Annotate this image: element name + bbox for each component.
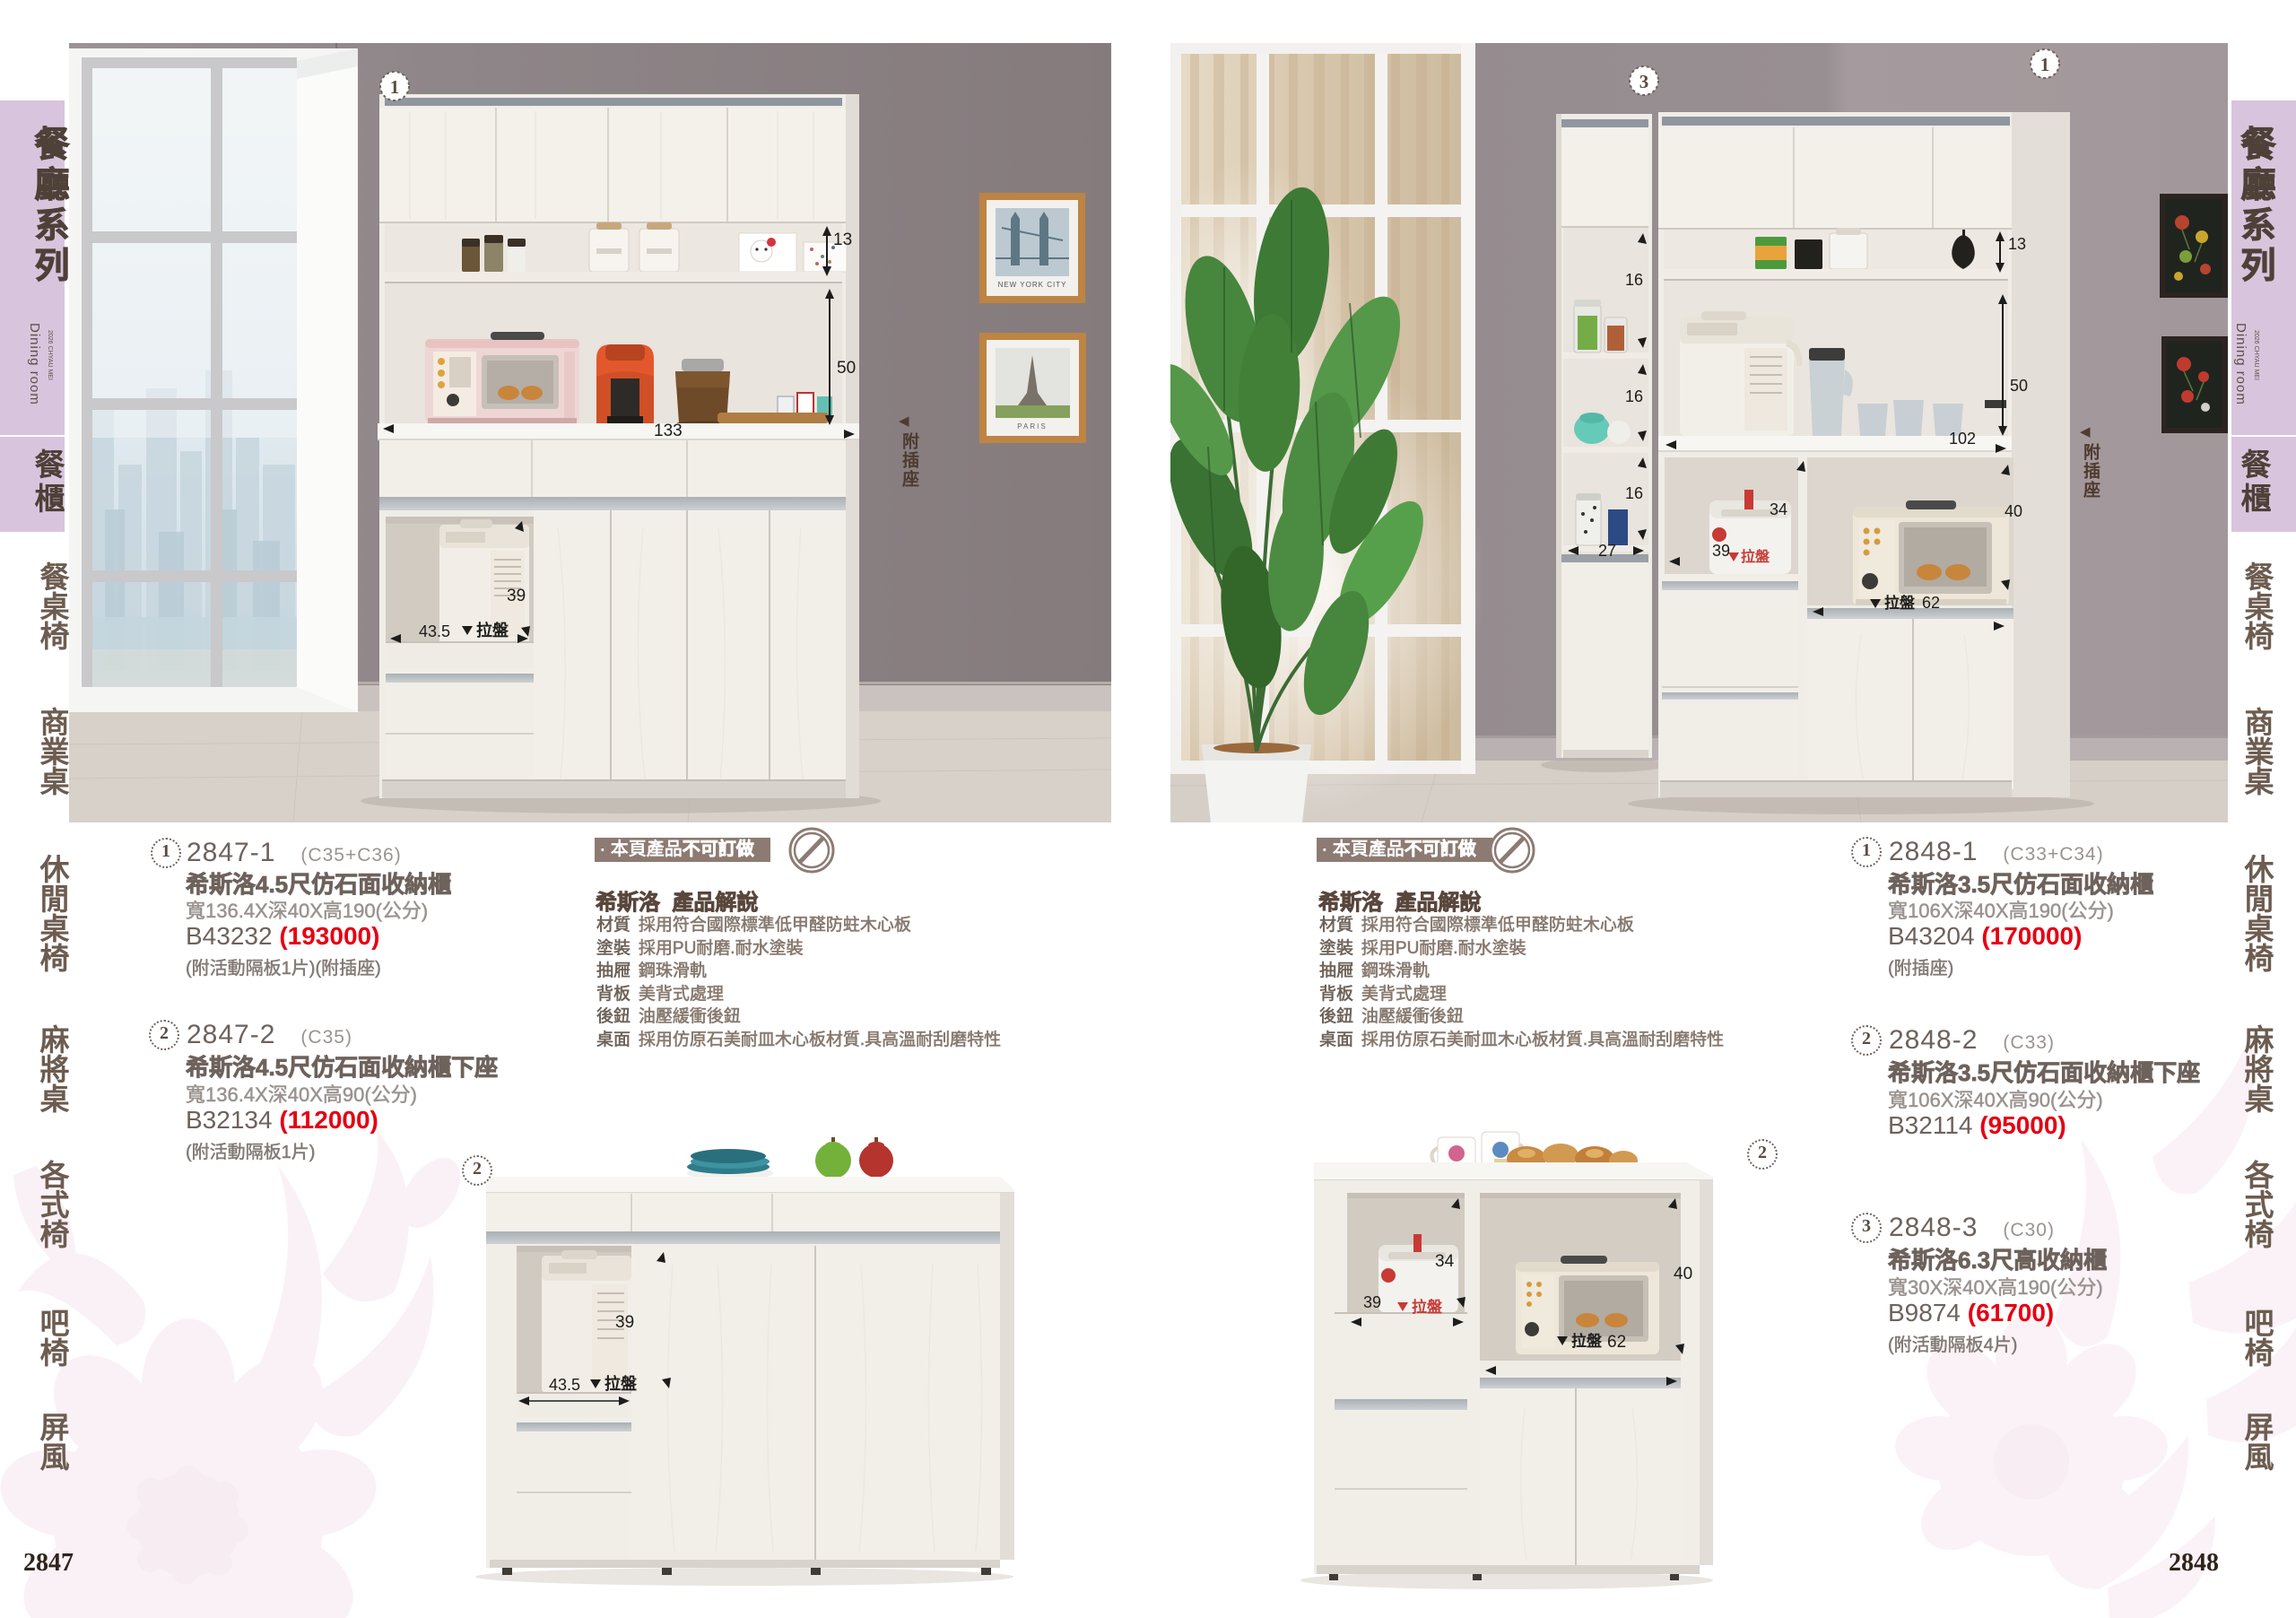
svg-text:3: 3 — [1639, 71, 1649, 92]
svg-text:34: 34 — [1435, 1252, 1455, 1271]
svg-text:34: 34 — [1770, 500, 1787, 518]
svg-text:NEW YORK CITY: NEW YORK CITY — [998, 281, 1067, 289]
svg-text:43.5: 43.5 — [549, 1376, 580, 1394]
svg-text:62: 62 — [1607, 1333, 1626, 1352]
svg-text:拉盤: 拉盤 — [604, 1374, 638, 1393]
svg-text:43.5: 43.5 — [419, 622, 450, 640]
svg-text:40: 40 — [2005, 502, 2022, 520]
svg-text:50: 50 — [2010, 377, 2028, 395]
svg-text:13: 13 — [2008, 235, 2026, 253]
svg-text:39: 39 — [1363, 1293, 1381, 1311]
svg-text:62: 62 — [1922, 594, 1940, 612]
svg-text:16: 16 — [1625, 271, 1643, 289]
svg-text:拉盤: 拉盤 — [1741, 548, 1770, 565]
svg-text:1: 1 — [390, 76, 400, 98]
svg-text:13: 13 — [833, 231, 852, 249]
svg-text:39: 39 — [615, 1313, 634, 1332]
svg-text:拉盤: 拉盤 — [476, 621, 509, 639]
svg-text:拉盤: 拉盤 — [1571, 1332, 1603, 1350]
svg-text:102: 102 — [1949, 430, 1976, 448]
svg-text:133: 133 — [654, 422, 683, 440]
svg-text:16: 16 — [1625, 484, 1643, 502]
svg-text:拉盤: 拉盤 — [1412, 1298, 1443, 1316]
svg-text:50: 50 — [837, 359, 856, 378]
svg-text:PARIS: PARIS — [1017, 422, 1047, 431]
svg-text:拉盤: 拉盤 — [1884, 594, 1916, 612]
svg-text:40: 40 — [1674, 1265, 1692, 1283]
svg-text:16: 16 — [1625, 387, 1643, 405]
svg-text:39: 39 — [1712, 542, 1730, 560]
svg-text:39: 39 — [507, 587, 526, 605]
svg-text:1: 1 — [2040, 54, 2050, 75]
svg-text:27: 27 — [1598, 542, 1616, 560]
